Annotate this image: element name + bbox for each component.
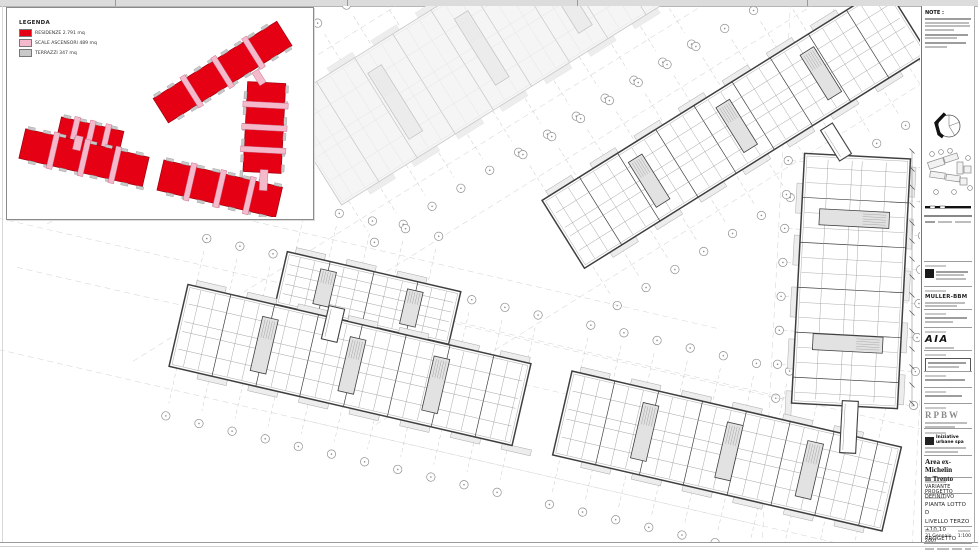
consultant-plant-engineering: AIA xyxy=(924,327,972,350)
drawing-title-line1: PIANTA LOTTO D xyxy=(925,501,971,518)
revision-table xyxy=(924,215,972,261)
client-logo xyxy=(925,437,934,445)
consultant-structures xyxy=(924,350,972,371)
aia-logo: AIA xyxy=(925,335,971,345)
project-name: Area ex-Michelin in Trento xyxy=(924,455,972,477)
consultant-architect: RPBW xyxy=(924,403,972,428)
key-plan-inset: LEGENDA RESIDENZE 2.791 mq SCALE ASCENSO… xyxy=(6,7,314,220)
legend-title: LEGENDA xyxy=(19,20,97,26)
drawing-sheet: LEGENDA RESIDENZE 2.791 mq SCALE ASCENSO… xyxy=(0,0,978,550)
legend: LEGENDA RESIDENZE 2.791 mq SCALE ASCENSO… xyxy=(19,20,97,60)
consultant-acoustics: MULLER-BBM xyxy=(924,286,972,309)
consultant-engineering-3 xyxy=(924,387,972,403)
location-key-plan xyxy=(924,148,972,200)
legend-swatch-terraces xyxy=(19,49,32,57)
consultant-engineering-2 xyxy=(924,371,972,387)
consultant-engineering-1 xyxy=(924,309,972,327)
location-key-plan-drawing xyxy=(924,148,974,198)
link-b-d xyxy=(259,169,268,190)
legend-item-stairs-lifts: SCALE ASCENSORI 489 mq xyxy=(19,39,97,47)
structures-logo-box xyxy=(925,358,971,372)
scale-value: 1:100 xyxy=(958,534,971,539)
wing-b-east-key xyxy=(239,81,289,180)
rpbw-logo: RPBW xyxy=(925,411,971,420)
scale-bar xyxy=(924,200,972,215)
notes-label: NOTE : xyxy=(925,10,971,16)
wing-b-east xyxy=(785,153,917,427)
legend-item-terraces: TERRAZZI 347 mq xyxy=(19,49,97,57)
notes-section: NOTE : xyxy=(924,6,972,106)
link-b-d xyxy=(840,401,859,454)
legend-swatch-residences xyxy=(19,29,32,37)
north-arrow-icon xyxy=(931,108,965,144)
north-arrow xyxy=(924,106,972,148)
client-block: Iniziative urbane spa xyxy=(924,428,972,455)
legend-swatch-stairs-lifts xyxy=(19,39,32,47)
date-scale-row: 31 Gennaio 2007 1:100 xyxy=(924,526,972,543)
sheet-bottom-edge xyxy=(0,546,978,547)
title-block: NOTE : xyxy=(921,6,975,543)
sheet-bottom-frame xyxy=(0,542,978,543)
management-logo xyxy=(925,269,934,278)
consultant-management xyxy=(924,261,972,286)
scale-bar-graphic xyxy=(924,203,972,211)
acoustics-name: MULLER-BBM xyxy=(925,294,971,300)
legend-item-residences: RESIDENZE 2.791 mq xyxy=(19,29,97,37)
project-name-line1: Area ex-Michelin xyxy=(925,458,971,475)
